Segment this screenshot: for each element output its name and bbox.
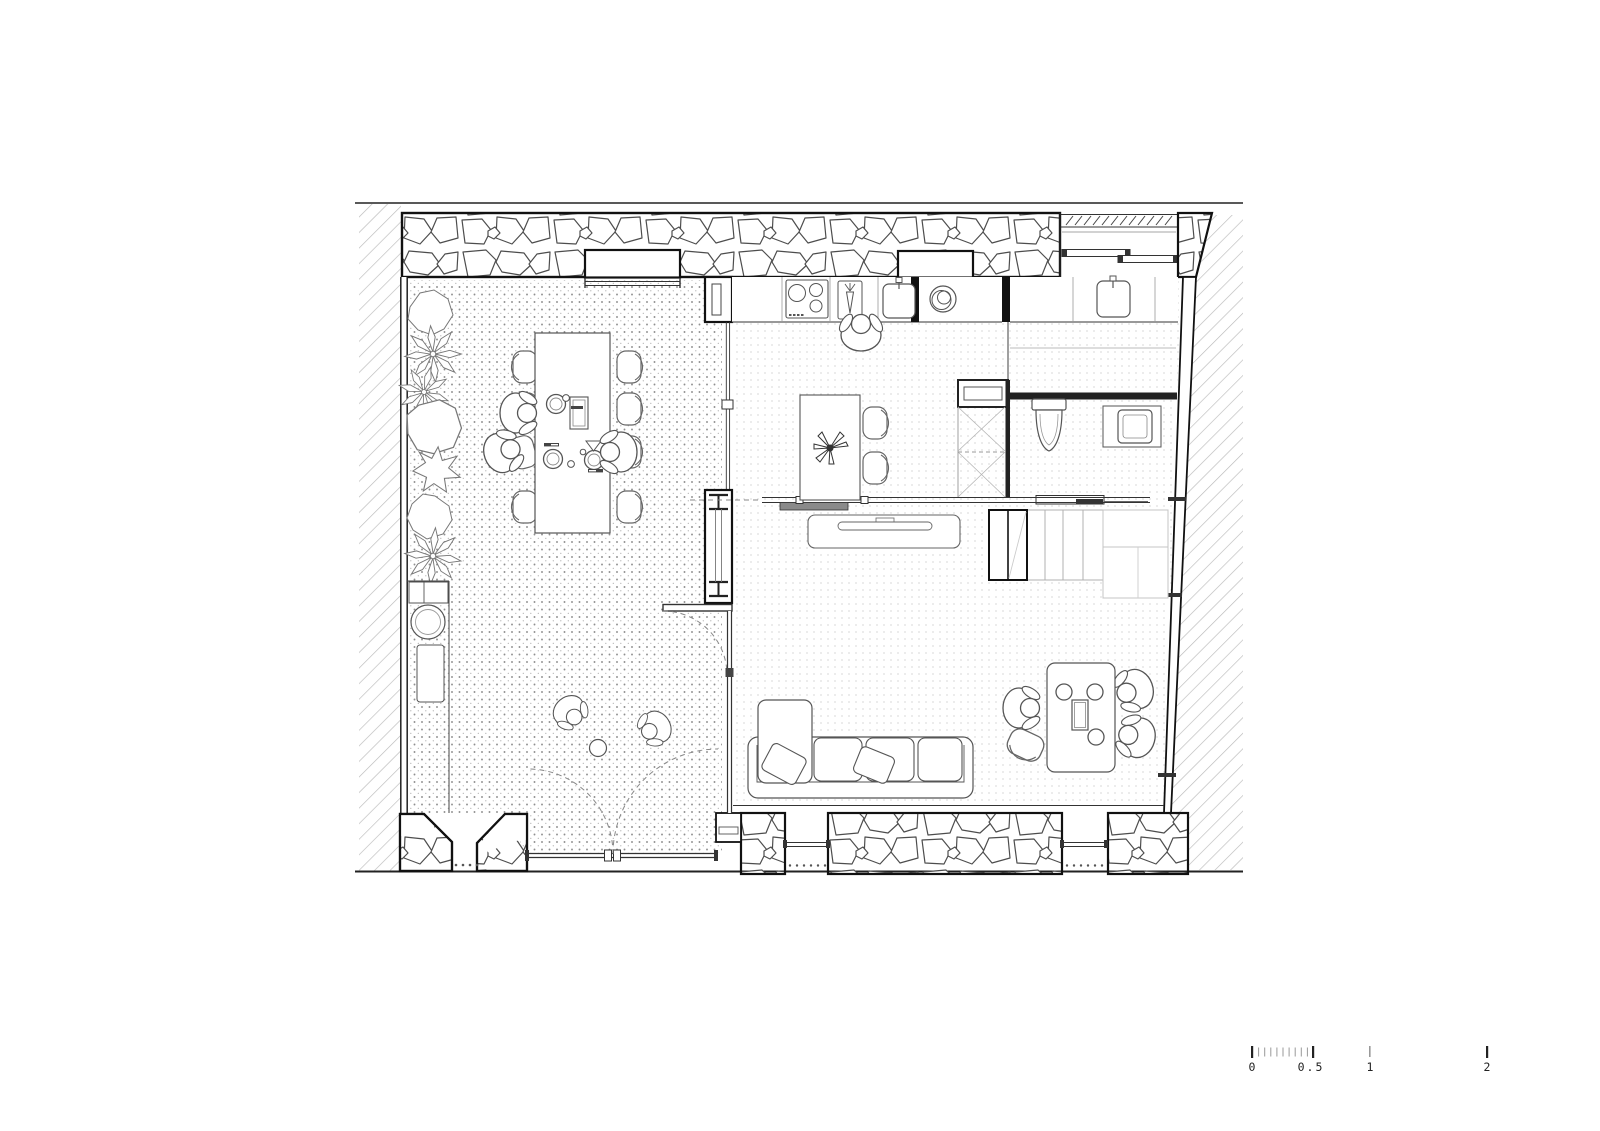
wall-end-box <box>716 813 741 842</box>
cup-icon <box>1087 684 1103 700</box>
stair-flight <box>1027 510 1103 580</box>
chair-icon <box>863 407 889 439</box>
column-marker-icon <box>1158 773 1176 777</box>
scale-label-2: 2 <box>1484 1060 1491 1074</box>
chair-icon <box>617 491 643 523</box>
patio-window-niche <box>585 250 680 278</box>
stair-landing <box>1103 510 1168 598</box>
gate-threshold-dots <box>455 864 479 867</box>
patio-paving-south <box>520 813 722 853</box>
wall-stub <box>1002 277 1010 322</box>
chair-icon <box>617 351 643 383</box>
chair-icon <box>617 393 643 425</box>
kitchen-niche <box>898 251 973 278</box>
lintel-hatch-icon <box>1066 216 1172 225</box>
utility-cabinet <box>409 582 448 603</box>
window-south-1 <box>783 840 830 867</box>
ball-icon <box>590 740 607 757</box>
utility-sink-icon <box>1097 276 1130 317</box>
scale-label-05: 0.5 <box>1298 1060 1325 1074</box>
hatch-context-left <box>359 204 401 871</box>
door-frame-marker <box>726 668 734 677</box>
gate-leaf-stop <box>605 850 612 861</box>
sliding-window-icon <box>1062 250 1178 263</box>
cup-icon <box>544 450 563 469</box>
cutting-board-icon <box>838 281 862 319</box>
window-south-2 <box>1060 840 1108 867</box>
floor-plan-drawing: 0 0.5 1 2 <box>0 0 1600 1131</box>
chair-icon <box>511 491 537 523</box>
scale-bar: 0 0.5 1 2 <box>1249 1046 1491 1074</box>
track-guide <box>861 497 868 504</box>
glazing-joint <box>722 400 733 409</box>
low-cabinet-icon <box>808 515 960 548</box>
scale-label-0: 0 <box>1249 1060 1256 1074</box>
outdoor-table-icon <box>535 333 610 533</box>
chair-icon <box>511 351 537 383</box>
washing-machine-icon <box>411 605 445 639</box>
wall-niche-shelf <box>958 380 1008 407</box>
chair-icon <box>863 452 889 484</box>
floor-plan-sheet: 0 0.5 1 2 <box>0 0 1600 1131</box>
utility-worktop <box>417 645 444 702</box>
window-top-right <box>1060 213 1178 277</box>
door-leaf <box>663 605 732 612</box>
cooktop-icon <box>786 280 828 318</box>
seat-cushion <box>814 738 862 781</box>
kitchen-counter <box>732 277 1002 322</box>
stone-pier-se <box>1108 813 1188 874</box>
bathroom-wall-west <box>1006 380 1011 497</box>
gate-piers <box>400 814 527 871</box>
entry-counter <box>1010 277 1178 322</box>
stone-wall-south-a <box>741 813 785 874</box>
cup-icon <box>1056 684 1072 700</box>
seat-cushion <box>918 738 962 781</box>
gate-leaf-stop <box>614 850 621 861</box>
washbasin-icon <box>1103 406 1161 447</box>
cup-icon <box>1088 729 1104 745</box>
kitchen-sink-icon <box>883 278 915 319</box>
washing-machine-icon <box>930 286 956 312</box>
scale-label-1: 1 <box>1367 1060 1374 1074</box>
stone-wall-south-b <box>828 813 1062 874</box>
sliding-panel <box>780 503 848 511</box>
column-marker-icon <box>1168 497 1186 501</box>
